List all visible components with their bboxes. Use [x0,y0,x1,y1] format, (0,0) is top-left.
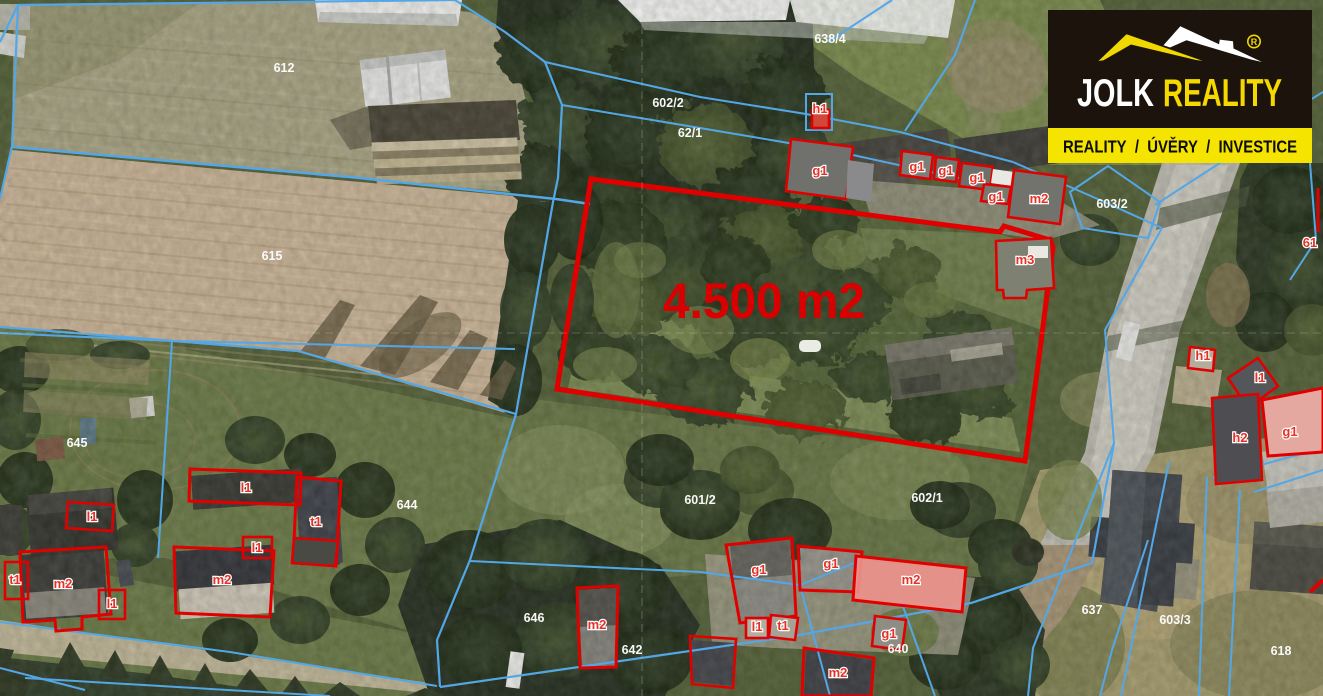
svg-text:m2: m2 [213,572,232,587]
svg-text:h1: h1 [812,101,827,116]
svg-text:l1: l1 [241,480,252,495]
svg-text:644: 644 [397,498,418,512]
svg-text:602/1: 602/1 [911,491,942,505]
svg-text:645: 645 [67,436,88,450]
svg-text:g1: g1 [881,626,896,641]
svg-text:4.500 m2: 4.500 m2 [663,273,865,329]
svg-text:l1: l1 [1255,370,1266,385]
svg-text:g1: g1 [823,556,838,571]
svg-text:m3: m3 [1016,252,1035,267]
svg-text:h2: h2 [1232,430,1247,445]
svg-text:601/2: 601/2 [684,493,715,507]
svg-text:g1: g1 [938,163,953,178]
svg-text:61: 61 [1303,235,1317,250]
svg-text:642: 642 [622,643,643,657]
svg-text:603/3: 603/3 [1159,613,1190,627]
svg-text:62/1: 62/1 [678,126,702,140]
svg-text:603/2: 603/2 [1096,197,1127,211]
svg-text:m2: m2 [54,576,73,591]
svg-text:640: 640 [888,642,909,656]
svg-text:t1: t1 [777,618,789,633]
svg-text:g1: g1 [812,163,827,178]
svg-text:g1: g1 [909,159,924,174]
svg-text:l1: l1 [252,540,263,555]
svg-text:638/4: 638/4 [814,32,845,46]
svg-text:g1: g1 [1282,424,1297,439]
svg-text:m2: m2 [902,572,921,587]
svg-text:618: 618 [1271,644,1292,658]
svg-text:637: 637 [1082,603,1103,617]
svg-text:615: 615 [262,249,283,263]
svg-text:g1: g1 [969,170,984,185]
svg-text:l1: l1 [87,509,98,524]
svg-text:R: R [1251,37,1258,47]
svg-text:m2: m2 [1030,191,1049,206]
svg-text:m2: m2 [829,665,848,680]
svg-text:g1: g1 [988,189,1003,204]
svg-text:t1: t1 [9,572,21,587]
svg-text:612: 612 [274,61,295,75]
svg-text:JOLK: JOLK [1077,72,1154,115]
svg-text:t1: t1 [310,514,322,529]
svg-text:646: 646 [524,611,545,625]
svg-text:h1: h1 [1195,348,1210,363]
svg-text:REALITY / ÚVĚRY / INVESTIC: REALITY / ÚVĚRY / INVESTICE [1063,136,1297,157]
svg-text:l1: l1 [752,619,763,634]
svg-text:g1: g1 [751,562,766,577]
svg-text:m2: m2 [588,617,607,632]
svg-text:602/2: 602/2 [652,96,683,110]
svg-text:l1: l1 [107,596,118,611]
svg-text:REALITY: REALITY [1163,72,1282,115]
